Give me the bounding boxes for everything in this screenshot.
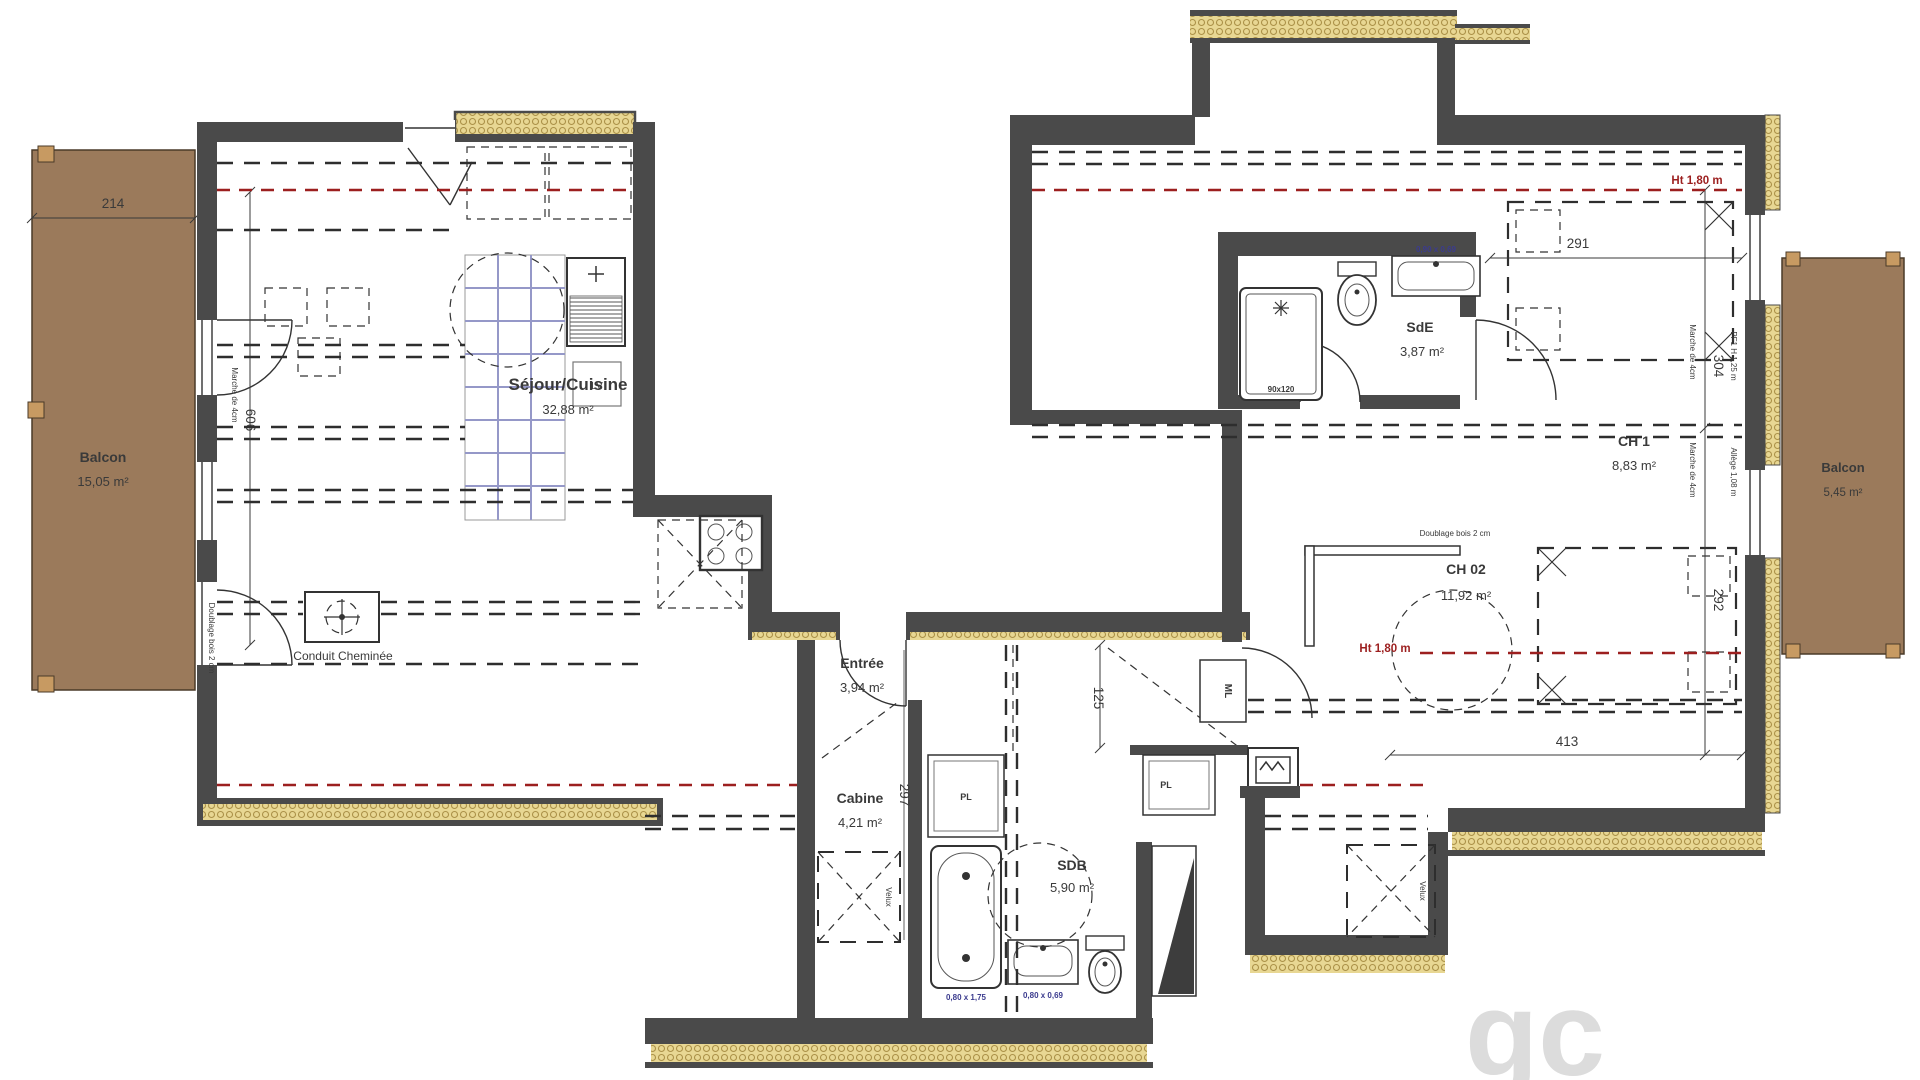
bathtub: 0,80 x 1,75 bbox=[931, 846, 1001, 1002]
balcony-right: Balcon 5,45 m² bbox=[1782, 252, 1904, 658]
balcony-post bbox=[28, 402, 44, 418]
cabine-label: Cabine bbox=[837, 790, 884, 806]
room-ch1: 291 CH 1 8,83 m² bbox=[1485, 202, 1747, 473]
allege-note: Allège 1,08 m bbox=[1729, 448, 1738, 497]
marche-note: Marche de 4cm bbox=[230, 367, 239, 422]
insulation-band bbox=[1765, 115, 1780, 210]
dimension-297-label: 297 bbox=[897, 784, 912, 807]
toilet-sde bbox=[1338, 262, 1376, 325]
radiator bbox=[1240, 748, 1300, 798]
attic-height-lines-right: Ht 1,80 m Ht 1,80 m bbox=[1032, 175, 1742, 785]
wall bbox=[1745, 115, 1765, 215]
wall bbox=[1745, 300, 1765, 470]
cooktop bbox=[700, 516, 762, 570]
insulation-band bbox=[910, 632, 1246, 640]
balcony-left-area: 15,05 m² bbox=[77, 474, 129, 489]
wall bbox=[1360, 395, 1460, 409]
ch02-area: 11,92 m² bbox=[1441, 588, 1492, 603]
balcony-post bbox=[38, 146, 54, 162]
turning-circle bbox=[988, 843, 1092, 947]
room-sejour-cuisine: LV Conduit Cheminée Séjour/Cuisine 32,88… bbox=[207, 147, 762, 674]
floor-plan-page: Balcon 15,05 m² 214 bbox=[0, 0, 1920, 1080]
bed-ch02 bbox=[1538, 548, 1736, 704]
wall bbox=[1136, 842, 1152, 1020]
velux-cabine: Velux bbox=[818, 852, 900, 942]
wall bbox=[1222, 410, 1242, 642]
middle-block: Entrée 3,94 m² Cabine 4,21 m² Velux 297 … bbox=[645, 640, 1196, 1068]
height-line-label: Ht 1,80 m bbox=[1671, 175, 1722, 187]
entree-label: Entrée bbox=[840, 655, 884, 671]
ch02-label: CH 02 bbox=[1446, 561, 1486, 577]
marche-note: Marche de 4cm bbox=[1688, 324, 1697, 379]
watermark: gc bbox=[1465, 967, 1605, 1080]
wall bbox=[197, 665, 217, 798]
balcony-left-label: Balcon bbox=[80, 449, 127, 465]
wall bbox=[633, 122, 655, 517]
kitchen-sink-unit bbox=[567, 258, 625, 346]
room-sde: 90x120 0,90 x 0,69 SdE 3,87 m² bbox=[1218, 232, 1556, 409]
kitchen-cabinet bbox=[549, 147, 631, 219]
doublage-note: Doublage bois 2 cm bbox=[207, 603, 216, 674]
wall bbox=[645, 1062, 1153, 1068]
chimney-flue bbox=[305, 592, 379, 642]
door-opening bbox=[403, 120, 455, 144]
wall bbox=[1032, 410, 1240, 424]
wall bbox=[1190, 38, 1457, 43]
balcony-left: Balcon 15,05 m² 214 bbox=[27, 146, 200, 692]
balcony-right-label: Balcon bbox=[1821, 460, 1864, 475]
height-line-label: Ht 1,80 m bbox=[1359, 643, 1410, 655]
door-ch02 bbox=[1242, 648, 1312, 718]
washbasin-sdb-size-label: 0,80 x 0,69 bbox=[1023, 991, 1064, 1000]
wall bbox=[1448, 808, 1765, 832]
window-left-1 bbox=[202, 320, 212, 395]
insulation-band bbox=[1452, 832, 1762, 852]
dimension-413-label: 413 bbox=[1556, 734, 1579, 749]
toilet-sdb bbox=[1086, 936, 1124, 993]
shower: 90x120 bbox=[1240, 288, 1322, 400]
dimension-606: 606 bbox=[243, 187, 258, 650]
balcony-post bbox=[1886, 644, 1900, 658]
chimney-label: Conduit Cheminée bbox=[293, 649, 393, 663]
washbasin-sdb: 0,80 x 0,69 bbox=[1008, 940, 1078, 1000]
room-ch02: Doublage bois 2 cm CH 02 11,92 m² 413 Ve… bbox=[1305, 529, 1747, 937]
wall bbox=[1218, 232, 1238, 407]
dimension-125-label: 125 bbox=[1091, 687, 1106, 710]
dimension-125: 125 bbox=[1091, 640, 1106, 753]
slope-line bbox=[822, 702, 898, 758]
insulation-band bbox=[1190, 16, 1457, 38]
washing-machine: ML bbox=[1200, 660, 1246, 722]
ch1-area: 8,83 m² bbox=[1612, 458, 1657, 473]
balcony-right-area: 5,45 m² bbox=[1824, 487, 1863, 499]
wall bbox=[645, 1018, 1153, 1044]
wall-annotations-right: Marche de 4cm Marche de 4cm PF1 H 1,25 m… bbox=[1688, 324, 1738, 497]
wall bbox=[1448, 850, 1765, 856]
sde-label: SdE bbox=[1406, 319, 1433, 335]
bathtub-size-label: 0,80 x 1,75 bbox=[946, 993, 987, 1002]
bed-ch1 bbox=[1508, 202, 1733, 360]
window-right-1 bbox=[1750, 215, 1760, 300]
cabine-area: 4,21 m² bbox=[838, 815, 883, 830]
marche-note: Marche de 4cm bbox=[1688, 442, 1697, 497]
wall bbox=[797, 640, 815, 1020]
left-wing-walls bbox=[197, 112, 1250, 826]
window-right-2 bbox=[1750, 470, 1760, 555]
sejour-label: Séjour/Cuisine bbox=[508, 375, 627, 394]
dimension-291-label: 291 bbox=[1567, 236, 1590, 251]
wall bbox=[197, 540, 217, 582]
insulation-band bbox=[1250, 955, 1445, 973]
insulation-band bbox=[1455, 28, 1530, 40]
floor-plan-drawing: Balcon 15,05 m² 214 bbox=[0, 0, 1920, 1080]
sejour-area: 32,88 m² bbox=[542, 402, 594, 417]
insulation-band bbox=[752, 632, 836, 640]
insulation-band bbox=[1765, 305, 1780, 465]
wall bbox=[1428, 832, 1448, 955]
wall bbox=[1010, 115, 1032, 425]
balcony-post bbox=[1886, 252, 1900, 266]
wall bbox=[1190, 10, 1457, 16]
wall bbox=[908, 700, 922, 1020]
washbasin-sde-size-label: 0,90 x 0,69 bbox=[1416, 245, 1457, 254]
dimension-214-label: 214 bbox=[102, 196, 125, 211]
dimension-291: 291 bbox=[1485, 236, 1747, 263]
closet-pl-label: PL bbox=[1160, 780, 1172, 790]
pf1-note: PF1 H 1,25 m bbox=[1729, 331, 1738, 381]
window-left-2 bbox=[202, 462, 212, 540]
velux-label: Velux bbox=[884, 887, 893, 907]
washing-machine-label: ML bbox=[1222, 684, 1233, 698]
balcony-left-deck bbox=[32, 150, 195, 690]
wall bbox=[1455, 40, 1530, 44]
insulation-band bbox=[651, 1044, 1147, 1064]
wall bbox=[197, 122, 217, 320]
partition bbox=[1305, 546, 1460, 555]
wall bbox=[455, 134, 635, 142]
furniture-dashed bbox=[327, 288, 369, 326]
velux-label: Velux bbox=[1418, 881, 1427, 901]
wall bbox=[1010, 115, 1195, 145]
sde-area: 3,87 m² bbox=[1400, 344, 1445, 359]
balcony-post bbox=[38, 676, 54, 692]
velux-ch02: Velux bbox=[1347, 845, 1435, 937]
dimension-292: 292 bbox=[1700, 428, 1726, 760]
dimension-304-label: 304 bbox=[1711, 355, 1726, 378]
sdb-area: 5,90 m² bbox=[1050, 880, 1095, 895]
insulation-band bbox=[203, 804, 657, 820]
balcony-right-deck bbox=[1782, 258, 1904, 654]
wall bbox=[1745, 555, 1765, 815]
balcony-post bbox=[1786, 252, 1800, 266]
balcony-post bbox=[1786, 644, 1800, 658]
wall bbox=[1437, 115, 1765, 145]
closet-pl-1: PL bbox=[928, 755, 1004, 837]
wall bbox=[197, 395, 217, 462]
dimension-292-label: 292 bbox=[1711, 589, 1726, 612]
insulation-band bbox=[1765, 558, 1780, 813]
dimension-413: 413 bbox=[1385, 734, 1747, 760]
shower-size-label: 90x120 bbox=[1268, 385, 1295, 394]
entree-area: 3,94 m² bbox=[840, 680, 885, 695]
wall bbox=[1130, 745, 1248, 755]
wall bbox=[1245, 793, 1265, 955]
doublage-note: Doublage bois 2 cm bbox=[1420, 529, 1491, 538]
kitchen-cabinet bbox=[467, 147, 545, 219]
corridor: 125 PL ML bbox=[1091, 640, 1300, 815]
closet-pl-2: PL bbox=[1143, 755, 1215, 815]
ch1-label: CH 1 bbox=[1618, 433, 1650, 449]
right-wing-walls bbox=[1010, 10, 1780, 973]
wall bbox=[1455, 24, 1530, 28]
partition bbox=[1305, 546, 1314, 646]
entry-door bbox=[840, 640, 906, 706]
closet-pl-label: PL bbox=[960, 792, 972, 802]
